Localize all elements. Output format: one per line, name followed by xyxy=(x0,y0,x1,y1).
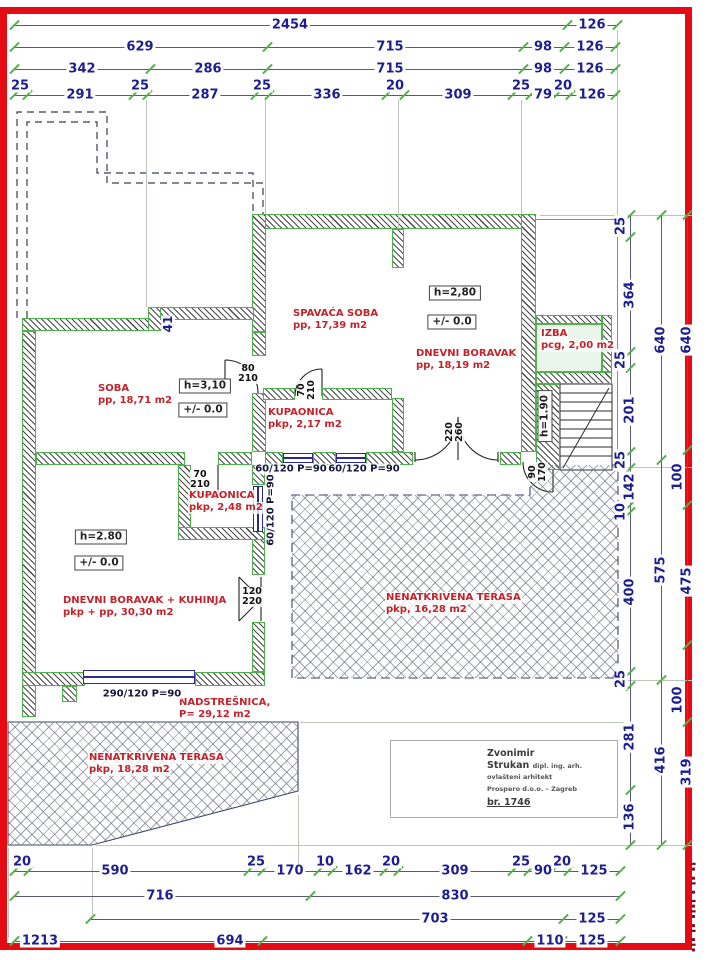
extension-line xyxy=(96,845,692,846)
door-size-line: 170 xyxy=(538,462,548,482)
dimension-label: 364 xyxy=(624,279,637,310)
wall-segment xyxy=(392,229,404,268)
dimension-label: 25 xyxy=(245,856,267,869)
dimension-label: 287 xyxy=(189,89,220,102)
wall-segment xyxy=(22,318,150,331)
dimension-line xyxy=(14,896,620,897)
dimension-label: 640 xyxy=(655,324,668,355)
wall-segment xyxy=(252,332,266,356)
room-label: NADSTREŠNICA,P= 29,12 m2 xyxy=(178,697,271,721)
room-label-line: NADSTREŠNICA, xyxy=(178,697,271,709)
dimension-label: 286 xyxy=(192,63,223,76)
room-label-line: IZBA xyxy=(540,328,568,340)
dimension-label: 20 xyxy=(552,80,574,93)
door-size-line: 210 xyxy=(307,380,317,400)
dimension-label: 126 xyxy=(576,89,607,102)
dimension-label: 170 xyxy=(274,865,305,878)
window-size-label: 60/120 P=90 xyxy=(266,474,277,546)
dimension-label: 110 xyxy=(534,935,565,948)
height-level-label: h=3,10 xyxy=(179,379,231,394)
terrace-hatch-area xyxy=(292,465,618,678)
dimension-line xyxy=(14,47,617,48)
dimension-label: 1213 xyxy=(20,935,60,948)
extension-line xyxy=(146,100,147,307)
dimension-label: 25 xyxy=(251,80,273,93)
architect-stamp-box: Zvonimir Strukan dipl. ing. arh. ovlašte… xyxy=(390,740,618,818)
dimension-label: 25 xyxy=(615,349,628,371)
wall-segment xyxy=(36,452,185,465)
room-label-line: SOBA xyxy=(97,383,130,395)
dimension-label: 98 xyxy=(532,41,554,54)
door-size-line: 260 xyxy=(455,422,465,442)
boundary-green-line xyxy=(536,219,618,220)
room-label: IZBApcg, 2,00 m2 xyxy=(540,328,615,352)
dimension-label: 25 xyxy=(615,215,628,237)
dimension-label: 136 xyxy=(624,801,637,832)
window-size-label: 60/120 P=90 xyxy=(328,464,400,475)
dimension-label: 20 xyxy=(551,856,573,869)
height-level-label: +/- 0.0 xyxy=(178,403,227,418)
wall-segment xyxy=(536,372,612,384)
window-symbol xyxy=(83,670,195,684)
door-size-label: 80210 xyxy=(238,364,258,384)
dimension-label: 25 xyxy=(615,668,628,690)
dimension-line xyxy=(687,215,688,845)
room-label: SOBApp, 18,71 m2 xyxy=(97,383,173,407)
room-label-line: DNEVNI BORAVAK + KUHINJA xyxy=(62,595,227,607)
wall-segment xyxy=(536,315,602,324)
dimension-label: 25 xyxy=(510,80,532,93)
wall-segment xyxy=(22,672,85,686)
room-label-line: NENATKRIVENA TERASA xyxy=(385,592,522,604)
extension-line xyxy=(521,100,522,214)
room-label: NENATKRIVENA TERASApkp, 18,28 m2 xyxy=(88,752,225,776)
window-size-label: 290/120 P=90 xyxy=(103,689,182,700)
dimension-label: 575 xyxy=(655,554,668,585)
dimension-label: 309 xyxy=(442,89,473,102)
dimension-label: 640 xyxy=(681,324,694,355)
dimension-label: 125 xyxy=(576,935,607,948)
room-label-line: pp, 18,19 m2 xyxy=(415,360,491,372)
dimension-label: 126 xyxy=(574,41,605,54)
wall-segment xyxy=(178,527,265,540)
wall-segment xyxy=(392,398,404,452)
dimension-label: 10 xyxy=(615,501,628,523)
boundary-green-line xyxy=(617,219,618,467)
wall-segment xyxy=(252,393,266,452)
wall-segment xyxy=(252,214,266,332)
room-label: KUPAONICApkp, 2,17 m2 xyxy=(267,407,343,431)
architect-first-name: Zvonimir xyxy=(487,748,534,759)
dimension-label: 703 xyxy=(419,913,450,926)
dimension-label: 590 xyxy=(99,865,130,878)
door-size-line: 210 xyxy=(238,374,258,384)
wall-segment xyxy=(252,622,265,672)
room-label-line: pcg, 2,00 m2 xyxy=(540,340,615,352)
extension-line xyxy=(8,848,9,938)
height-level-label: h=1.90 xyxy=(538,390,553,442)
door-size-label: 120220 xyxy=(242,587,262,607)
height-level-label: +/- 0.0 xyxy=(74,556,123,571)
edge-plot-stamp: ▪▮▪ ▮▪ ▪▮▪▮ ▪ ▮▪ ▪▮ xyxy=(690,861,697,952)
dimension-label: 25 xyxy=(9,80,31,93)
dimension-label: 629 xyxy=(124,41,155,54)
room-label-line: pkp, 2,17 m2 xyxy=(267,419,343,431)
room-label-line: NENATKRIVENA TERASA xyxy=(88,752,225,764)
door-size-label: 90170 xyxy=(528,462,548,482)
room-label: KUPAONICApkp, 2,48 m2 xyxy=(188,490,264,514)
wall-segment xyxy=(263,388,295,400)
extension-line xyxy=(300,722,625,723)
dimension-label: 400 xyxy=(624,576,637,607)
extension-line xyxy=(92,848,93,915)
architect-role: ovlašteni arhitekt xyxy=(487,772,582,784)
architect-company: Prospero d.o.o. – Zagreb xyxy=(487,784,582,796)
window-symbol xyxy=(283,453,313,463)
wall-segment xyxy=(263,214,536,229)
extension-line xyxy=(398,100,399,229)
architect-title: dipl. ing. arh. xyxy=(533,762,582,770)
room-label-line: pp, 18,71 m2 xyxy=(97,395,173,407)
dimension-label: 98 xyxy=(532,63,554,76)
room-label-line: KUPAONICA xyxy=(267,407,335,419)
room-label-line: SPAVAĆA SOBA xyxy=(292,308,379,320)
dimension-label: 20 xyxy=(384,80,406,93)
door-size-label: 70210 xyxy=(297,380,317,400)
dimension-label: 416 xyxy=(655,744,668,775)
height-level-label: h=2,80 xyxy=(429,286,481,301)
dimension-label: 2454 xyxy=(270,19,310,32)
room-label-line: P= 29,12 m2 xyxy=(178,709,252,721)
room-label-line: DNEVNI BORAVAK xyxy=(415,348,517,360)
extension-line xyxy=(617,30,618,219)
wall-segment xyxy=(322,388,392,400)
room-label-line: pkp, 2,48 m2 xyxy=(188,502,264,514)
dimension-line xyxy=(14,25,617,26)
dimension-label: 715 xyxy=(374,41,405,54)
dimension-label: 142 xyxy=(624,471,637,502)
wall-segment xyxy=(521,214,536,452)
dimension-label: 126 xyxy=(574,63,605,76)
floor-plan-sheet: Zvonimir Strukan dipl. ing. arh. ovlašte… xyxy=(0,0,707,960)
door-size-line: 220 xyxy=(242,597,262,607)
window-symbol xyxy=(336,453,366,463)
door-size-line: 210 xyxy=(190,480,210,490)
dimension-label: 126 xyxy=(576,19,607,32)
dimension-label: 336 xyxy=(311,89,342,102)
dimension-label: 10 xyxy=(314,856,336,869)
dimension-label: 342 xyxy=(66,63,97,76)
room-label-line: KUPAONICA xyxy=(188,490,256,502)
dimension-label: 100 xyxy=(672,684,685,715)
dimension-label: 79 xyxy=(532,89,554,102)
door-size-label: 70210 xyxy=(190,470,210,490)
dimension-label: 291 xyxy=(64,89,95,102)
dimension-label: 125 xyxy=(576,913,607,926)
wall-segment xyxy=(62,686,77,702)
room-label-line: pp, 17,39 m2 xyxy=(292,320,368,332)
dimension-label: 830 xyxy=(439,890,470,903)
dimension-label: 319 xyxy=(681,756,694,787)
wall-segment xyxy=(195,672,265,686)
dimension-label: 162 xyxy=(342,865,373,878)
dimension-label: 201 xyxy=(624,394,637,425)
height-level-label: h=2.80 xyxy=(75,530,127,545)
extension-line xyxy=(298,795,299,868)
room-label-line: pkp, 16,28 m2 xyxy=(385,604,468,616)
dimension-label: 25 xyxy=(129,80,151,93)
architect-stamp-text: Zvonimir Strukan dipl. ing. arh. ovlašte… xyxy=(487,748,582,809)
dimension-label: 125 xyxy=(578,865,609,878)
extension-line xyxy=(265,100,266,214)
room-label: NENATKRIVENA TERASApkp, 16,28 m2 xyxy=(385,592,522,616)
wall-segment xyxy=(500,452,521,465)
wall-segment xyxy=(218,452,252,465)
door-size-label: 220260 xyxy=(445,422,465,442)
room-label: DNEVNI BORAVAKpp, 18,19 m2 xyxy=(415,348,517,372)
room-label: DNEVNI BORAVAK + KUHINJApkp + pp, 30,30 … xyxy=(62,595,227,619)
wall-segment xyxy=(22,331,36,717)
window-size-label: 41 xyxy=(161,316,175,333)
height-level-label: +/- 0.0 xyxy=(427,315,476,330)
dimension-label: 715 xyxy=(374,63,405,76)
room-label: SPAVAĆA SOBApp, 17,39 m2 xyxy=(292,308,379,332)
room-label-line: pkp, 18,28 m2 xyxy=(88,764,171,776)
dimension-label: 25 xyxy=(510,856,532,869)
dimension-line xyxy=(90,919,620,920)
dimension-label: 694 xyxy=(214,935,245,948)
dimension-label: 309 xyxy=(439,865,470,878)
dimension-label: 716 xyxy=(144,890,175,903)
dimension-label: 475 xyxy=(681,565,694,596)
room-label-line: pkp + pp, 30,30 m2 xyxy=(62,607,174,619)
dimension-line xyxy=(14,941,620,942)
dimension-label: 20 xyxy=(11,856,33,869)
dimension-label: 281 xyxy=(624,721,637,752)
architect-license-number: br. 1746 xyxy=(487,797,582,809)
dimension-line xyxy=(14,69,617,70)
dimension-label: 20 xyxy=(380,856,402,869)
dimension-label: 25 xyxy=(615,449,628,471)
dimension-label: 100 xyxy=(672,461,685,492)
architect-last-name: Strukan xyxy=(487,760,529,771)
